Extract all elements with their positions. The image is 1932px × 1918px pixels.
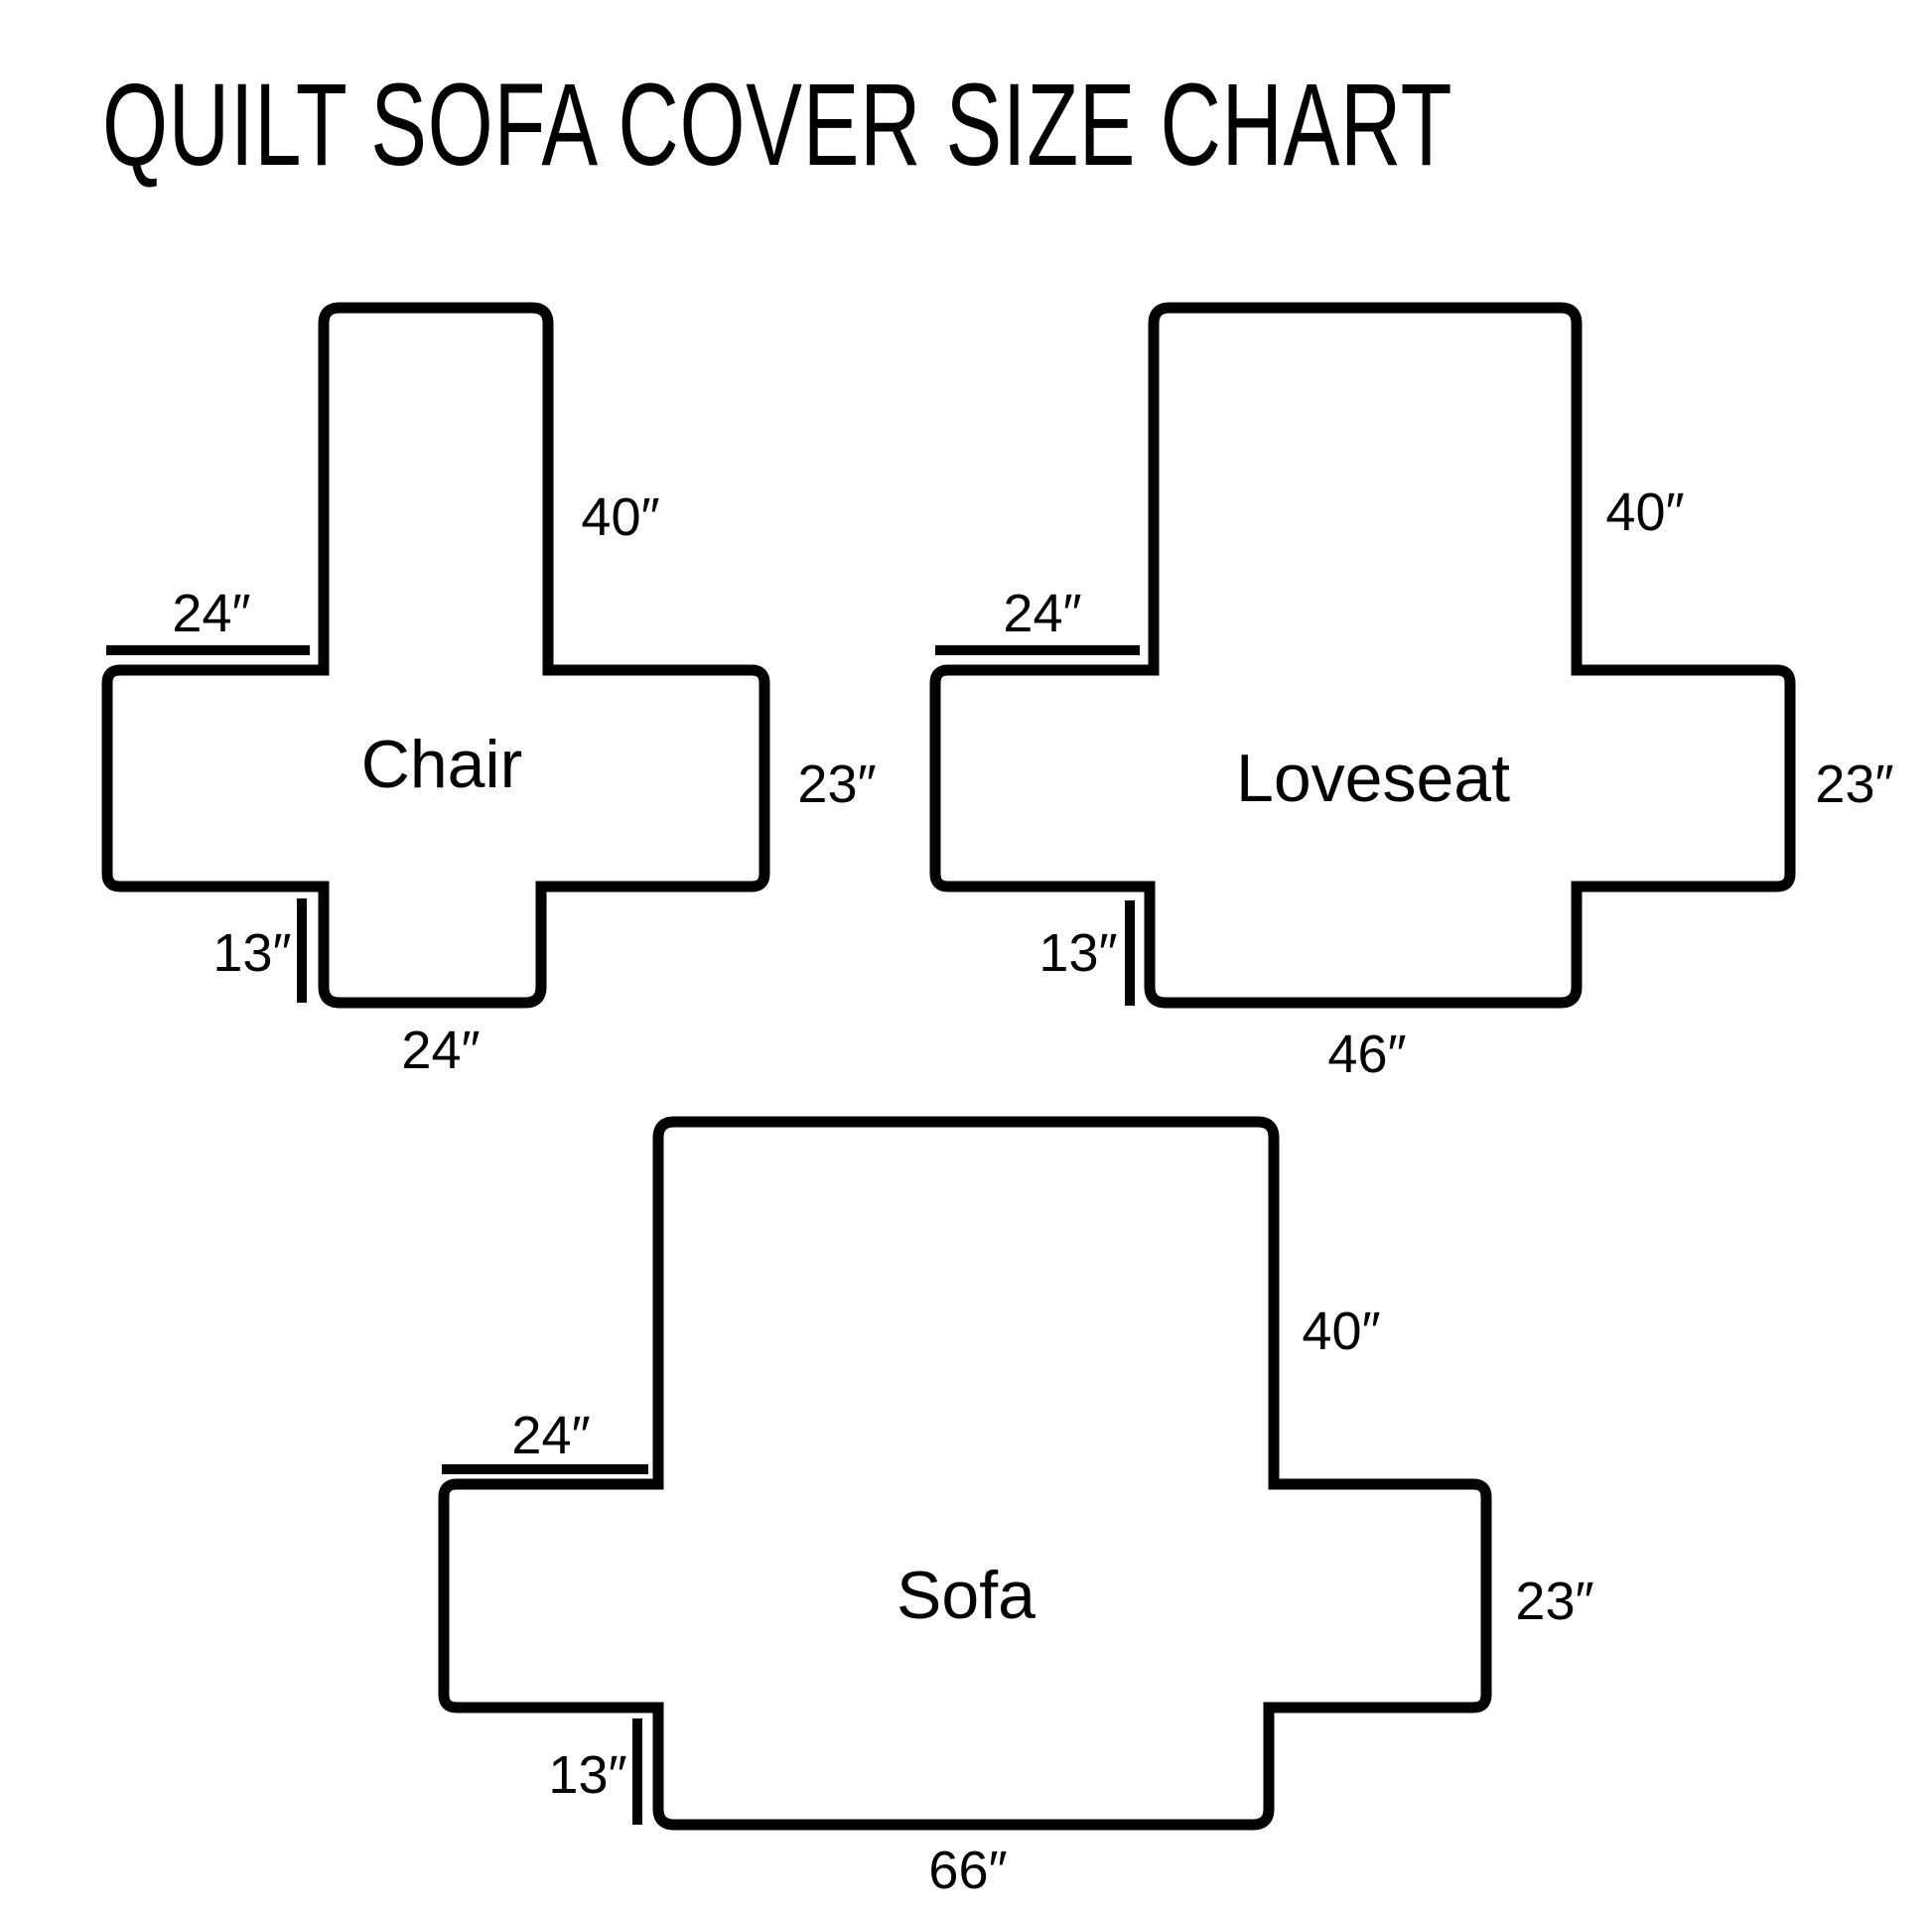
sofa-side-height-label: 23″ [1515,1571,1593,1632]
loveseat-flap-height-dimension-line [1125,900,1135,1006]
chair-flap-height-dimension-line [297,898,307,1003]
loveseat-side-height-label: 23″ [1815,753,1893,815]
chair-bottom-width-label: 24″ [401,1020,480,1081]
chair-flap-height-label: 13″ [212,922,291,984]
chair-side-height-label: 23″ [797,753,876,815]
loveseat-arm-depth-label: 24″ [1003,583,1081,644]
loveseat-bottom-width-label: 46″ [1327,1024,1406,1085]
sofa-back-height-label: 40″ [1302,1301,1380,1362]
sofa-flap-height-dimension-line [632,1718,642,1825]
chair-arm-depth-dimension-line [106,645,310,655]
chair-arm-depth-label: 24″ [172,583,250,644]
sofa-bottom-width-label: 66″ [928,1840,1007,1901]
loveseat-arm-depth-dimension-line [935,645,1140,655]
chair-name-label: Chair [361,726,523,803]
loveseat-back-height-label: 40″ [1605,481,1684,543]
chair-back-height-label: 40″ [581,486,659,548]
sofa-flap-height-label: 13″ [548,1744,626,1806]
size-chart-page: QUILT SOFA COVER SIZE CHART 24″ 40″ 23″ … [0,0,1932,1918]
loveseat-flap-height-label: 13″ [1038,922,1117,984]
sofa-arm-depth-label: 24″ [511,1405,590,1466]
loveseat-name-label: Loveseat [1236,740,1510,817]
sofa-name-label: Sofa [897,1557,1035,1634]
